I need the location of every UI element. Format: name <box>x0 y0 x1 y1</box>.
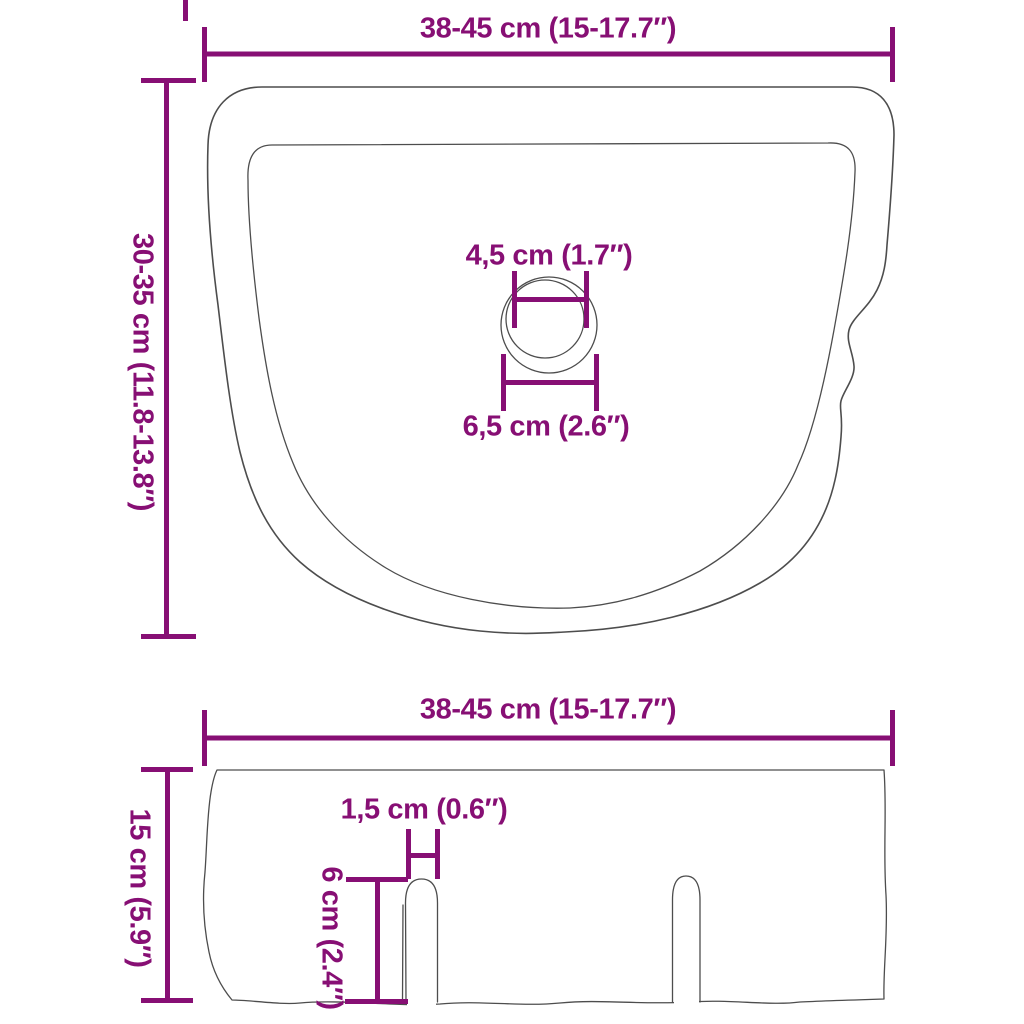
top-view-depth-dimension-label: 30-35 cm (11.8-13.8″) <box>128 233 157 511</box>
dimension-diagram: 38-45 cm (15-17.7″) 30-35 cm (11.8-13.8″… <box>0 0 1024 1024</box>
slot-depth-dimension <box>345 879 408 1002</box>
drain-outer-diameter-dimension <box>503 354 597 411</box>
sink-top-view-outer-outline <box>208 87 894 633</box>
sink-top-view <box>208 87 894 633</box>
right-mounting-slot <box>673 876 701 1002</box>
top-view-width-dimension-label: 38-45 cm (15-17.7″) <box>420 15 676 44</box>
slot-depth-dimension-label: 6 cm (2.4″) <box>317 866 346 1009</box>
edge-tick-artifact <box>183 0 188 21</box>
left-mounting-slot <box>406 879 438 1002</box>
sink-side-view <box>204 770 887 1006</box>
slot-width-dimension <box>406 829 440 879</box>
right-slot-cutout <box>674 996 699 1006</box>
sink-top-view-inner-basin-outline <box>248 143 855 608</box>
drain-inner-diameter-dimension <box>514 271 587 328</box>
side-view-width-dimension-label: 38-45 cm (15-17.7″) <box>420 696 676 725</box>
side-view-height-dimension-label: 15 cm (5.9″) <box>125 808 154 967</box>
left-slot-cutout <box>407 996 436 1006</box>
drain-inner-circle <box>506 280 584 358</box>
slot-width-dimension-label: 1,5 cm (0.6″) <box>341 796 508 825</box>
sink-side-view-outline <box>204 770 887 1005</box>
drain-outer-diameter-label: 6,5 cm (2.6″) <box>463 413 630 442</box>
left-mounting-slot-inner-line <box>403 905 404 1000</box>
drain-inner-diameter-label: 4,5 cm (1.7″) <box>466 242 633 271</box>
